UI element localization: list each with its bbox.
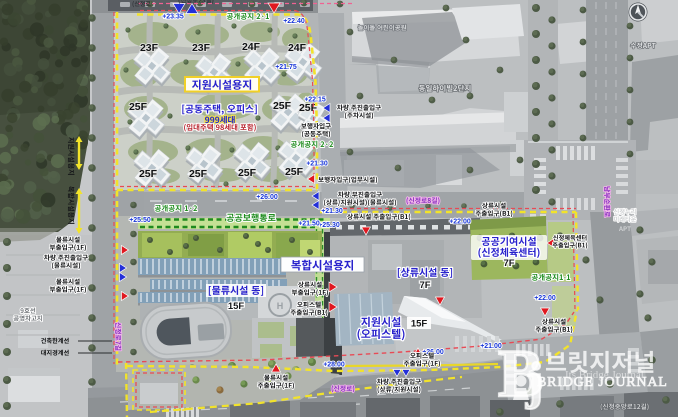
svg-text:15F: 15F <box>411 319 428 330</box>
svg-text:25F: 25F <box>273 100 292 112</box>
svg-text:25F: 25F <box>238 167 257 179</box>
svg-text:H: H <box>277 301 284 311</box>
svg-text:+22.40: +22.40 <box>283 18 305 25</box>
svg-text:+22.00: +22.00 <box>449 219 471 226</box>
svg-text:25F: 25F <box>139 168 158 180</box>
svg-text:+25.30: +25.30 <box>318 222 340 229</box>
svg-text:25F: 25F <box>299 102 318 114</box>
svg-text:+21.30: +21.30 <box>321 208 343 215</box>
svg-text:+23.35: +23.35 <box>162 14 184 21</box>
svg-text:25F: 25F <box>129 101 148 113</box>
svg-text:25F: 25F <box>285 166 304 178</box>
svg-text:+26.00: +26.00 <box>256 194 278 201</box>
svg-text:+21.30: +21.30 <box>306 161 328 168</box>
svg-text:23F: 23F <box>192 42 211 54</box>
svg-text:23F: 23F <box>140 42 159 54</box>
svg-text:15F: 15F <box>228 301 245 312</box>
svg-text:+25.50: +25.50 <box>129 217 151 224</box>
svg-text:+21.50: +21.50 <box>298 221 320 228</box>
svg-text:Its Bridge Journal: Its Bridge Journal <box>565 369 644 381</box>
svg-text:+22.15: +22.15 <box>304 97 326 104</box>
svg-text:+21.75: +21.75 <box>275 64 297 71</box>
svg-text:24F: 24F <box>242 41 261 53</box>
svg-text:+22.00: +22.00 <box>534 295 556 302</box>
svg-text:25F: 25F <box>189 168 208 180</box>
svg-text:+28.00: +28.00 <box>323 362 345 369</box>
svg-text:24F: 24F <box>288 42 307 54</box>
svg-text:7F: 7F <box>503 258 514 269</box>
svg-text:7F: 7F <box>419 280 430 291</box>
